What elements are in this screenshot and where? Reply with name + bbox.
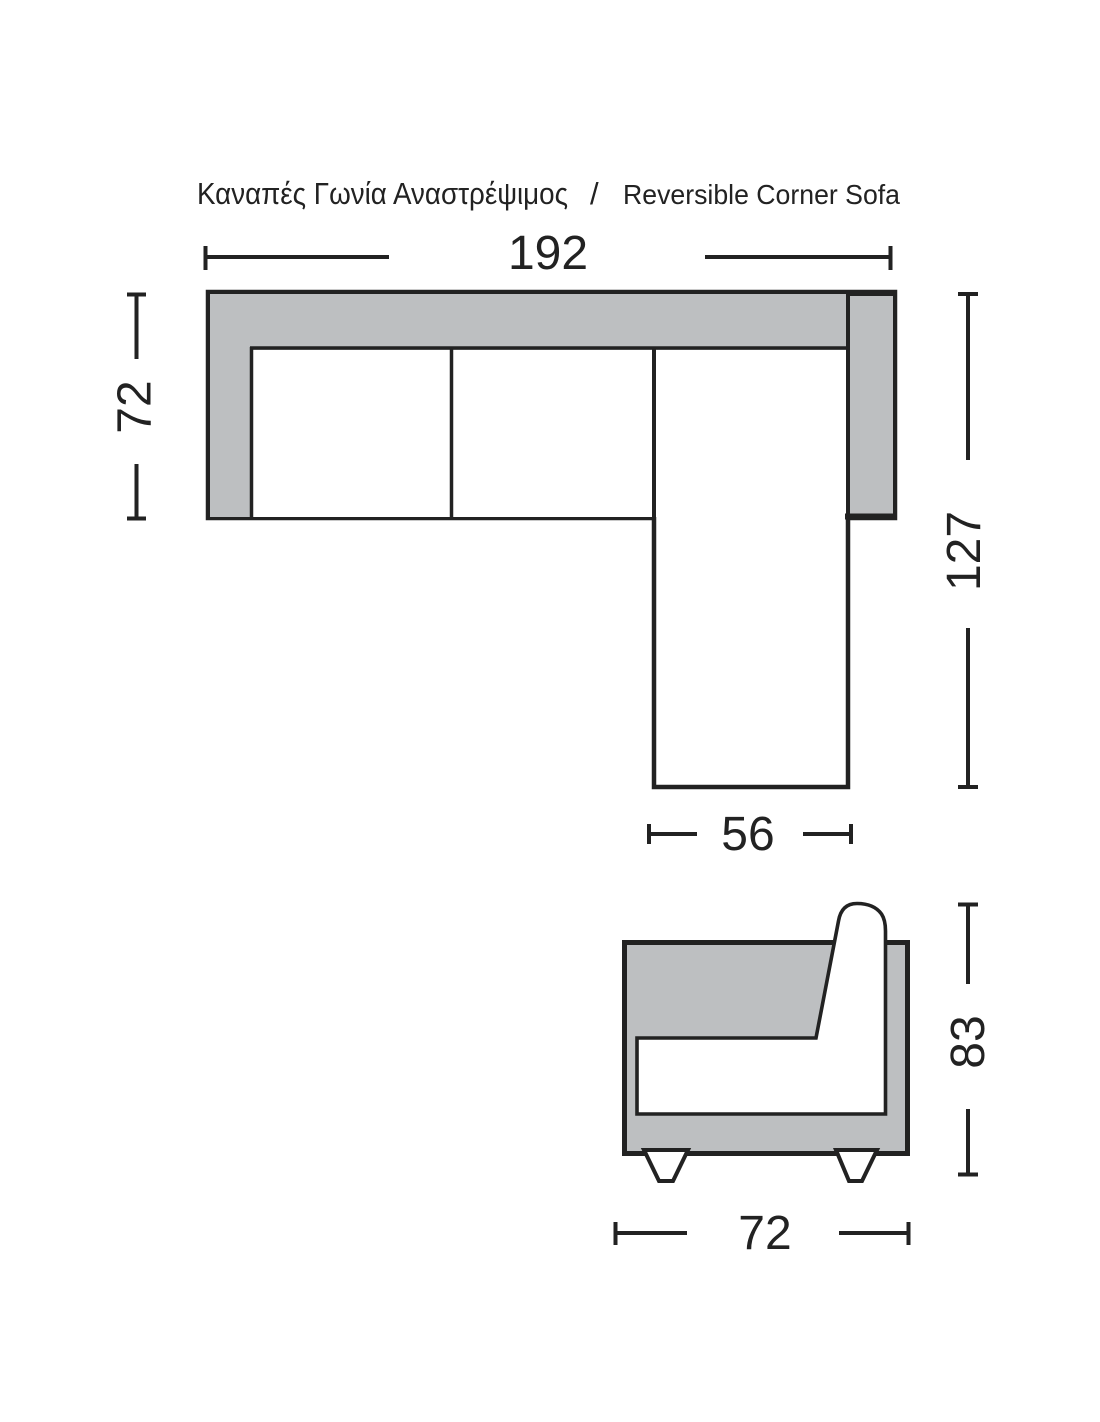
svg-text:127: 127 [938,511,991,591]
svg-text:72: 72 [109,380,162,433]
svg-text:56: 56 [721,808,774,861]
svg-text:192: 192 [508,227,588,280]
svg-text:83: 83 [942,1015,995,1068]
svg-text:72: 72 [738,1207,791,1260]
svg-text:Καναπές Γωνία Αναστρέψιμος: Καναπές Γωνία Αναστρέψιμος [197,176,568,211]
svg-text:/: / [590,176,599,211]
svg-text:Reversible Corner Sofa: Reversible Corner Sofa [623,179,901,210]
